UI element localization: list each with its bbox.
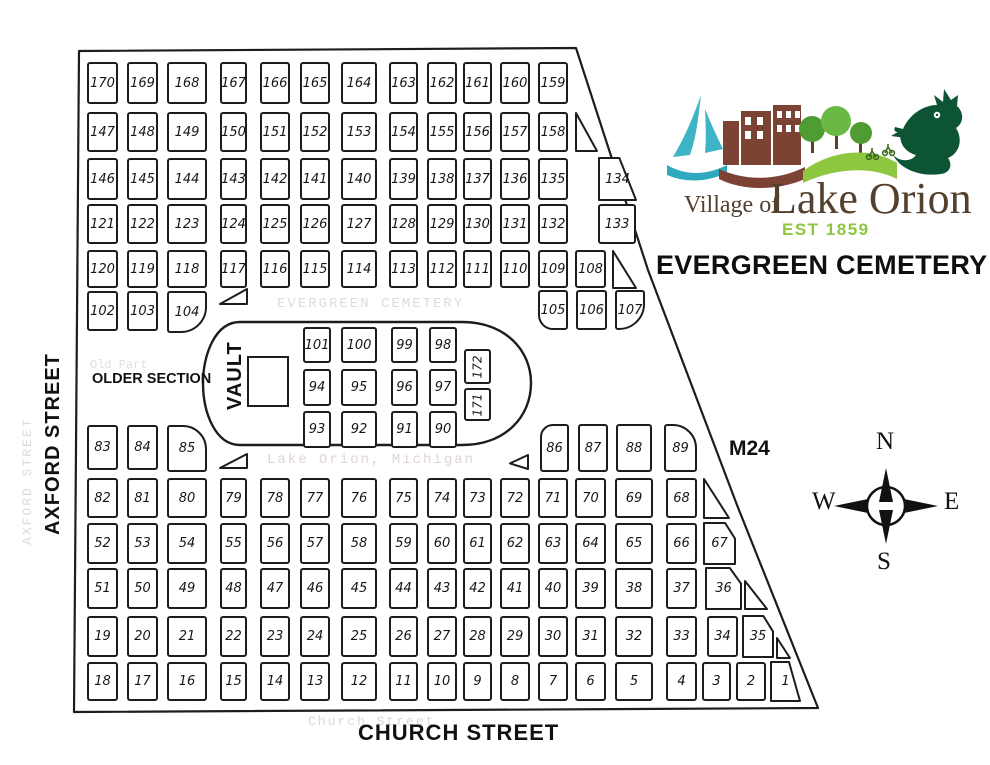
plot-134: 134 [599,158,636,200]
plot-number: 151 [263,125,288,140]
plot-number: 165 [303,76,328,91]
plot-149: 149 [167,112,207,152]
plot-154: 154 [389,112,418,152]
plot-number: 99 [396,338,413,353]
plot-82: 82 [87,478,118,518]
plot-15: 15 [220,662,247,701]
plot-number: 24 [307,629,324,644]
plot-number: 88 [626,441,643,456]
plot-number: 13 [307,674,324,689]
plot-number: 64 [582,536,599,551]
plot-94: 94 [303,369,331,406]
plot-number: 122 [130,217,155,232]
plot-13: 13 [300,662,330,701]
plot-23: 23 [260,616,290,657]
plot-number: 38 [626,581,643,596]
plot-61: 61 [463,523,492,564]
plot-156: 156 [463,112,492,152]
plot-124: 124 [220,204,247,244]
plot-136: 136 [500,158,530,200]
plot-71: 71 [538,478,568,518]
plot-number: 12 [351,674,368,689]
plot-96: 96 [391,369,418,406]
plot-64: 64 [575,523,606,564]
plot-67: 67 [704,523,735,564]
plot-number: 46 [307,581,324,596]
plot-number: 55 [225,536,242,551]
plot-number: 26 [395,629,412,644]
plot-number: 104 [175,305,200,320]
plot-111: 111 [463,250,492,288]
plot-131: 131 [500,204,530,244]
plot-number: 63 [545,536,562,551]
plot-number: 142 [263,172,288,187]
plot-155: 155 [427,112,457,152]
plot-number: 112 [430,262,455,277]
plot-number: 155 [430,125,455,140]
plot-20: 20 [127,616,158,657]
plot-number: 105 [541,303,566,318]
plot-number: 119 [130,262,155,277]
plot-number: 123 [175,217,200,232]
plot-number: 29 [507,629,524,644]
plot-number: 98 [435,338,452,353]
plot-8: 8 [500,662,530,701]
plot-46: 46 [300,568,330,609]
plot-69: 69 [615,478,653,518]
plot-38: 38 [615,568,653,609]
plot-123: 123 [167,204,207,244]
plot-132: 132 [538,204,568,244]
plot-number: 81 [134,491,151,506]
plot-number: 11 [395,674,412,689]
plot-57: 57 [300,523,330,564]
plot-number: 45 [351,581,368,596]
plot-21: 21 [167,616,207,657]
plot-110: 110 [500,250,530,288]
plot-153: 153 [341,112,377,152]
plot-number: 50 [134,581,151,596]
plot-number: 86 [546,441,563,456]
plot-28: 28 [463,616,492,657]
plot-number: 161 [465,76,490,91]
plot-number: 31 [582,629,599,644]
plot-49: 49 [167,568,207,609]
plot-37: 37 [666,568,697,609]
plot-number: 135 [541,172,566,187]
plot-127: 127 [341,204,377,244]
plot-70: 70 [575,478,606,518]
plot-105: 105 [538,290,568,330]
plot-103: 103 [127,291,158,331]
plot-42: 42 [463,568,492,609]
plot-141: 141 [300,158,330,200]
plot-number: 80 [179,491,196,506]
plot-number: 39 [582,581,599,596]
plot-33: 33 [666,616,697,657]
plot-number: 83 [94,440,111,455]
plot-30: 30 [538,616,568,657]
plot-51: 51 [87,568,118,609]
plot-number: 52 [94,536,111,551]
cemetery-map-page: EVERGREEN CEMETERY Lake Orion, Michigan … [0,0,990,765]
plot-92: 92 [341,411,377,448]
plot-81: 81 [127,478,158,518]
plot-24: 24 [300,616,330,657]
plot-number: 170 [90,76,115,91]
plot-number: 53 [134,536,151,551]
plot-number: 51 [94,581,111,596]
plot-number: 66 [673,536,690,551]
plot-number: 130 [465,217,490,232]
plot-171: 171 [464,388,491,421]
plot-41: 41 [500,568,530,609]
plot-number: 132 [541,217,566,232]
plot-59: 59 [389,523,418,564]
plot-86: 86 [540,424,569,472]
plot-number: 152 [303,125,328,140]
plot-22: 22 [220,616,247,657]
plot-1: 1 [771,662,800,701]
plot-91: 91 [391,411,418,448]
plot-31: 31 [575,616,606,657]
plot-number: 127 [347,217,372,232]
plot-number: 62 [507,536,524,551]
plot-number: 84 [134,440,151,455]
plot-83: 83 [87,425,118,470]
plot-32: 32 [615,616,653,657]
plot-number: 78 [267,491,284,506]
plot-114: 114 [341,250,377,288]
plot-number: 97 [435,380,452,395]
plot-56: 56 [260,523,290,564]
plot-number: 120 [90,262,115,277]
plot-139: 139 [389,158,418,200]
plot-119: 119 [127,250,158,288]
plot-number: 54 [179,536,196,551]
plot-100: 100 [341,327,377,363]
plot-number: 74 [434,491,451,506]
plot-150: 150 [220,112,247,152]
plot-number: 147 [90,125,115,140]
plot-168: 168 [167,62,207,104]
plot-number: 47 [267,581,284,596]
plot-2: 2 [736,662,766,701]
plot-146: 146 [87,158,118,200]
plot-number: 36 [715,581,732,596]
plot-number: 10 [434,674,451,689]
plot-73: 73 [463,478,492,518]
plot-106: 106 [576,290,607,330]
plot-9: 9 [463,662,492,701]
plot-128: 128 [389,204,418,244]
plot-17: 17 [127,662,158,701]
plot-151: 151 [260,112,290,152]
plot-116: 116 [260,250,290,288]
plot-number: 92 [351,422,368,437]
plot-74: 74 [427,478,457,518]
plot-45: 45 [341,568,377,609]
plot-number: 77 [307,491,324,506]
plot-118: 118 [167,250,207,288]
plot-number: 15 [225,674,242,689]
plot-79: 79 [220,478,247,518]
plot-164: 164 [341,62,377,104]
plot-152: 152 [300,112,330,152]
plot-43: 43 [427,568,457,609]
plot-number: 94 [309,380,326,395]
plot-12: 12 [341,662,377,701]
plot-108: 108 [575,250,606,288]
plot-4: 4 [666,662,697,701]
plot-number: 79 [225,491,242,506]
plot-number: 28 [469,629,486,644]
plot-number: 107 [618,303,643,318]
plot-160: 160 [500,62,530,104]
plot-number: 117 [221,262,246,277]
plot-34: 34 [707,616,738,657]
plot-number: 6 [586,674,594,689]
plot-3: 3 [702,662,731,701]
plot-129: 129 [427,204,457,244]
plot-142: 142 [260,158,290,200]
plot-121: 121 [87,204,118,244]
plot-number: 43 [434,581,451,596]
plot-number: 32 [626,629,643,644]
plot-number: 90 [435,422,452,437]
plot-number: 71 [545,491,562,506]
plot-122: 122 [127,204,158,244]
plot-10: 10 [427,662,457,701]
plot-number: 56 [267,536,284,551]
plot-44: 44 [389,568,418,609]
plot-5: 5 [615,662,653,701]
plot-number: 89 [672,441,689,456]
plot-number: 27 [434,629,451,644]
plot-133: 133 [598,204,636,244]
plot-number: 1 [781,674,789,689]
plot-98: 98 [429,327,457,363]
plot-number: 166 [263,76,288,91]
plot-115: 115 [300,250,330,288]
plot-90: 90 [429,411,457,448]
plot-number: 40 [545,581,562,596]
plot-number: 103 [130,304,155,319]
plot-number: 20 [134,629,151,644]
plot-number: 156 [465,125,490,140]
plot-78: 78 [260,478,290,518]
plot-144: 144 [167,158,207,200]
plot-number: 111 [465,262,490,277]
plot-26: 26 [389,616,418,657]
plot-number: 58 [351,536,368,551]
plot-104: 104 [167,291,207,333]
plot-number: 102 [90,304,115,319]
plot-11: 11 [389,662,418,701]
plot-number: 157 [503,125,528,140]
plot-number: 153 [347,125,372,140]
plot-number: 125 [263,217,288,232]
plot-number: 100 [347,338,372,353]
plot-number: 167 [221,76,246,91]
plot-number: 76 [351,491,368,506]
plots-layer: 1701691681671661651641631621611601591471… [0,0,990,765]
plot-number: 37 [673,581,690,596]
plot-126: 126 [300,204,330,244]
plot-number: 67 [711,536,728,551]
plot-number: 25 [351,629,368,644]
plot-169: 169 [127,62,158,104]
plot-53: 53 [127,523,158,564]
plot-167: 167 [220,62,247,104]
plot-number: 133 [605,217,630,232]
plot-107: 107 [615,290,645,330]
plot-89: 89 [664,424,697,472]
plot-number: 129 [430,217,455,232]
plot-172: 172 [464,349,491,384]
plot-number: 168 [175,76,200,91]
plot-number: 159 [541,76,566,91]
plot-number: 138 [430,172,455,187]
plot-number: 116 [263,262,288,277]
plot-7: 7 [538,662,568,701]
plot-number: 154 [391,125,416,140]
plot-number: 9 [473,674,481,689]
plot-number: 85 [179,441,196,456]
plot-137: 137 [463,158,492,200]
plot-number: 23 [267,629,284,644]
plot-165: 165 [300,62,330,104]
plot-157: 157 [500,112,530,152]
plot-number: 4 [677,674,685,689]
plot-143: 143 [220,158,247,200]
plot-80: 80 [167,478,207,518]
plot-162: 162 [427,62,457,104]
plot-number: 137 [465,172,490,187]
plot-99: 99 [391,327,418,363]
plot-number: 7 [549,674,557,689]
plot-number: 144 [175,172,200,187]
plot-number: 148 [130,125,155,140]
plot-number: 115 [303,262,328,277]
plot-number: 124 [221,217,246,232]
plot-140: 140 [341,158,377,200]
plot-number: 126 [303,217,328,232]
plot-47: 47 [260,568,290,609]
plot-number: 30 [545,629,562,644]
plot-number: 41 [507,581,524,596]
plot-number: 145 [130,172,155,187]
plot-number: 146 [90,172,115,187]
plot-117: 117 [220,250,247,288]
plot-147: 147 [87,112,118,152]
plot-number: 5 [630,674,638,689]
plot-148: 148 [127,112,158,152]
plot-number: 35 [750,629,767,644]
plot-number: 70 [582,491,599,506]
plot-number: 172 [471,355,485,378]
plot-76: 76 [341,478,377,518]
plot-113: 113 [389,250,418,288]
plot-number: 87 [585,441,602,456]
plot-number: 114 [347,262,372,277]
plot-number: 16 [179,674,196,689]
plot-number: 21 [179,629,196,644]
plot-number: 149 [175,125,200,140]
plot-number: 59 [395,536,412,551]
plot-number: 150 [221,125,246,140]
plot-number: 73 [469,491,486,506]
plot-number: 60 [434,536,451,551]
plot-number: 72 [507,491,524,506]
plot-number: 3 [712,674,720,689]
plot-19: 19 [87,616,118,657]
plot-number: 14 [267,674,284,689]
plot-number: 118 [175,262,200,277]
plot-97: 97 [429,369,457,406]
plot-112: 112 [427,250,457,288]
plot-number: 171 [471,393,485,416]
plot-158: 158 [538,112,568,152]
plot-48: 48 [220,568,247,609]
plot-163: 163 [389,62,418,104]
plot-120: 120 [87,250,118,288]
plot-166: 166 [260,62,290,104]
plot-66: 66 [666,523,697,564]
plot-54: 54 [167,523,207,564]
plot-93: 93 [303,411,331,448]
plot-number: 57 [307,536,324,551]
plot-number: 131 [503,217,528,232]
plot-25: 25 [341,616,377,657]
plot-62: 62 [500,523,530,564]
plot-161: 161 [463,62,492,104]
plot-29: 29 [500,616,530,657]
plot-145: 145 [127,158,158,200]
plot-number: 75 [395,491,412,506]
plot-35: 35 [743,616,773,657]
plot-number: 61 [469,536,486,551]
plot-36: 36 [706,568,741,609]
plot-77: 77 [300,478,330,518]
plot-84: 84 [127,425,158,470]
plot-number: 2 [747,674,755,689]
plot-number: 140 [347,172,372,187]
plot-85: 85 [167,425,207,472]
plot-number: 93 [309,422,326,437]
plot-number: 49 [179,581,196,596]
plot-159: 159 [538,62,568,104]
plot-50: 50 [127,568,158,609]
plot-65: 65 [615,523,653,564]
plot-109: 109 [538,250,568,288]
plot-75: 75 [389,478,418,518]
plot-88: 88 [616,424,652,472]
plot-number: 82 [94,491,111,506]
plot-58: 58 [341,523,377,564]
plot-number: 101 [305,338,330,353]
plot-27: 27 [427,616,457,657]
plot-95: 95 [341,369,377,406]
plot-number: 113 [391,262,416,277]
plot-101: 101 [303,327,331,363]
plot-68: 68 [666,478,697,518]
plot-number: 128 [391,217,416,232]
plot-number: 160 [503,76,528,91]
plot-number: 68 [673,491,690,506]
plot-number: 91 [396,422,413,437]
plot-number: 134 [605,172,630,187]
